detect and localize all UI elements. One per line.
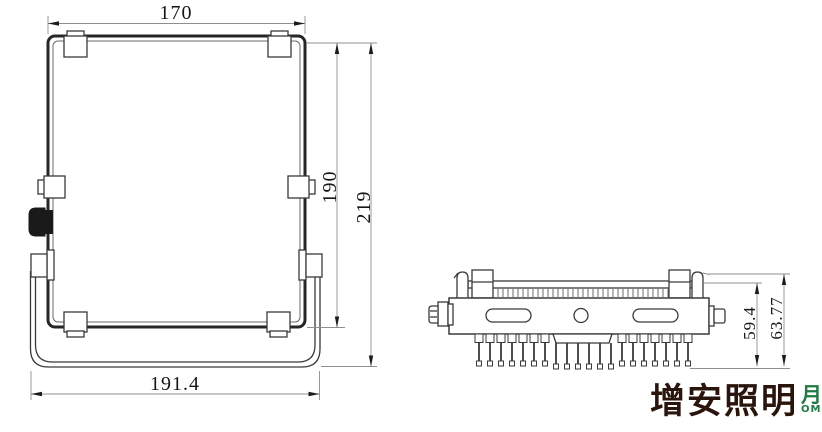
dimension-170: 170 bbox=[48, 2, 305, 34]
pin-foot bbox=[686, 361, 691, 366]
pin-foot bbox=[675, 361, 680, 366]
clip-top-left bbox=[64, 31, 87, 57]
pin-foot bbox=[587, 364, 592, 369]
brand-logo-clipped-suffix: OM bbox=[801, 405, 821, 415]
dimension-arrowhead bbox=[369, 43, 373, 54]
clip-side-left bbox=[38, 176, 65, 198]
brand-logo: 增安照明 月 OM bbox=[650, 381, 822, 427]
pin-foot bbox=[477, 361, 482, 366]
pin-foot bbox=[576, 364, 581, 369]
dimension-arrowhead bbox=[335, 43, 339, 54]
pin-collar bbox=[519, 334, 527, 343]
pin-collar bbox=[618, 334, 626, 343]
dim-label-63-77: 63.77 bbox=[767, 296, 786, 339]
pin-foot bbox=[543, 361, 548, 366]
housing-body bbox=[449, 298, 709, 334]
brand-logo-clipped: 月 OM bbox=[801, 384, 822, 415]
technical-drawing: 170 190 219 191.4 bbox=[0, 0, 822, 432]
pin-collar bbox=[673, 334, 681, 343]
brand-logo-text: 增安照明 bbox=[650, 381, 798, 423]
pin-collar bbox=[640, 334, 648, 343]
pin-foot bbox=[653, 361, 658, 366]
drawing-canvas: 170 190 219 191.4 bbox=[0, 0, 822, 432]
pin-foot bbox=[521, 361, 526, 366]
pin-collar bbox=[629, 334, 637, 343]
dim-label-190: 190 bbox=[319, 171, 341, 204]
dim-label-191-4: 191.4 bbox=[150, 373, 200, 395]
bracket-cross-plate bbox=[553, 334, 612, 343]
dim-label-59-4: 59.4 bbox=[740, 306, 759, 340]
pin-foot bbox=[554, 364, 559, 369]
pin-foot bbox=[620, 361, 625, 366]
side-clip-right bbox=[669, 270, 690, 298]
dimension-arrowhead bbox=[782, 355, 786, 366]
pin-collar bbox=[662, 334, 670, 343]
pin-collar bbox=[497, 334, 505, 343]
bezel-hatch-ticks bbox=[473, 289, 693, 297]
dim-label-219: 219 bbox=[353, 191, 375, 224]
pin-foot bbox=[631, 361, 636, 366]
dimension-arrowhead bbox=[31, 392, 42, 396]
lens-bezel-strip bbox=[468, 281, 692, 288]
pin-collar bbox=[684, 334, 692, 343]
clip-top-right bbox=[268, 31, 291, 57]
pin-foot bbox=[510, 361, 515, 366]
brand-logo-clipped-glyph: 月 bbox=[801, 384, 822, 405]
dimension-arrowhead bbox=[755, 283, 759, 294]
pin-foot bbox=[598, 364, 603, 369]
pin-foot bbox=[532, 361, 537, 366]
dimension-arrowhead bbox=[294, 21, 305, 25]
pivot-bolt-side bbox=[709, 306, 725, 326]
dimension-arrowhead bbox=[309, 392, 320, 396]
pin-foot bbox=[664, 361, 669, 366]
pin-collar bbox=[530, 334, 538, 343]
dim-label-170: 170 bbox=[160, 2, 193, 24]
dimension-arrowhead bbox=[335, 317, 339, 328]
clip-bottom-right bbox=[267, 312, 290, 337]
pin-collar bbox=[651, 334, 659, 343]
pin-foot bbox=[609, 364, 614, 369]
side-view: 59.4 63.77 bbox=[429, 270, 790, 369]
dimension-191-4: 191.4 bbox=[31, 371, 320, 400]
bracket-hook-left bbox=[454, 272, 468, 298]
pin-foot bbox=[642, 361, 647, 366]
pin-collar bbox=[508, 334, 516, 343]
front-view: 170 190 219 191.4 bbox=[29, 2, 377, 400]
pin-collar bbox=[475, 334, 483, 343]
dimension-arrowhead bbox=[369, 356, 373, 367]
pin-collar bbox=[541, 334, 549, 343]
dimension-219: 219 bbox=[321, 43, 377, 367]
clip-bottom-left bbox=[64, 312, 87, 337]
pin-collar bbox=[486, 334, 494, 343]
cable-gland-front bbox=[29, 208, 53, 236]
clip-side-right bbox=[288, 176, 315, 198]
pivot-bolt-left bbox=[31, 250, 54, 280]
pivot-bolt-right bbox=[299, 250, 322, 280]
dimension-arrowhead bbox=[782, 274, 786, 285]
dimension-arrowhead bbox=[48, 21, 59, 25]
pin-foot bbox=[499, 361, 504, 366]
pin-foot bbox=[488, 361, 493, 366]
lamp-frame-outer bbox=[48, 36, 305, 327]
dimension-190: 190 bbox=[307, 43, 377, 328]
pin-foot bbox=[565, 364, 570, 369]
dimension-arrowhead bbox=[755, 355, 759, 366]
cable-gland-side bbox=[429, 302, 453, 326]
bracket-hook-right bbox=[692, 272, 710, 298]
side-clip-left bbox=[472, 270, 493, 298]
